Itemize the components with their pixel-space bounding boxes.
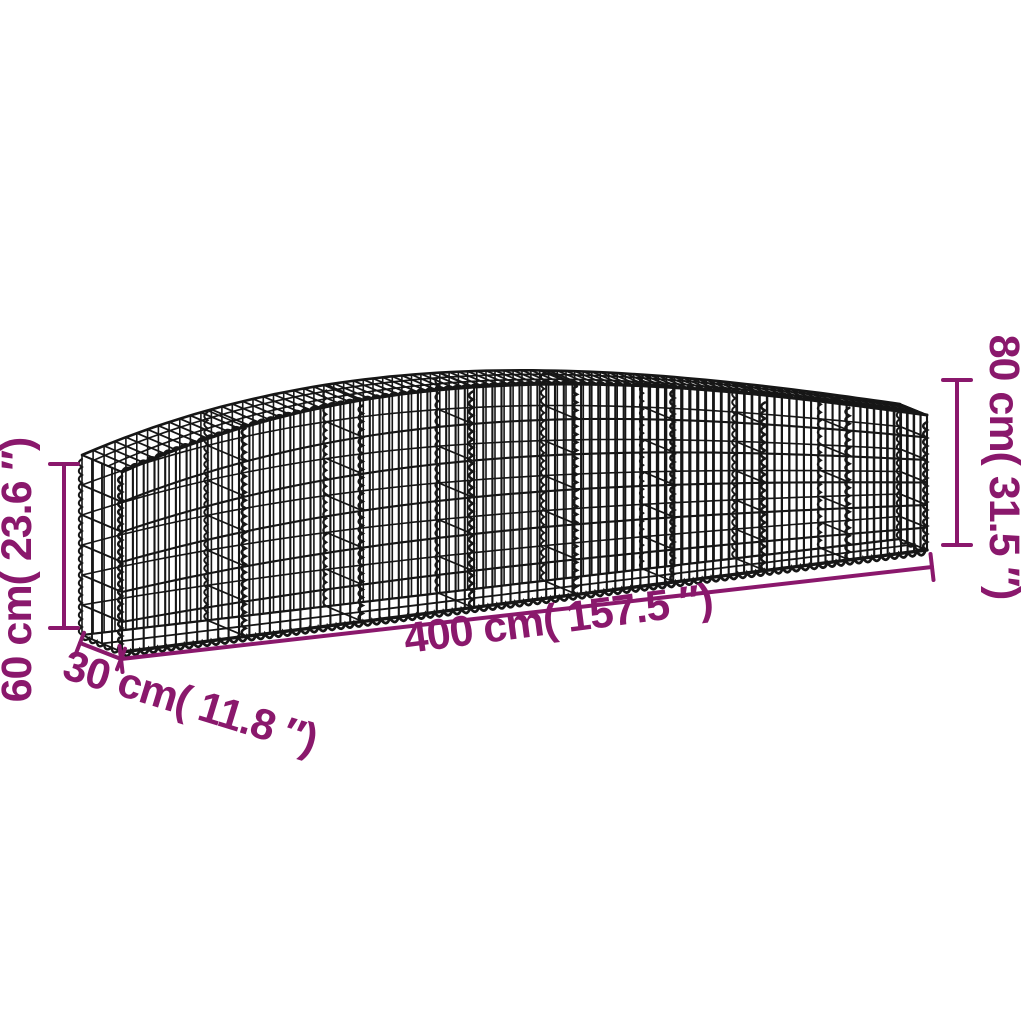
dimension-label-depth: 30 cm( 11.8 ″)	[58, 641, 323, 764]
dimension-label-height-end: 60 cm( 23.6 ″)	[0, 438, 41, 703]
dimension-height-peak: 80 cm( 31.5 ″)	[943, 335, 1024, 600]
dimension-cap	[931, 554, 934, 580]
diagram-canvas: 60 cm( 23.6 ″) 80 cm( 31.5 ″) 400 cm( 15…	[0, 0, 1024, 1024]
dimension-length: 400 cm( 157.5 ″)	[120, 554, 934, 672]
dimension-label-height-peak: 80 cm( 31.5 ″)	[980, 335, 1024, 600]
gabion-dimension-diagram: 60 cm( 23.6 ″) 80 cm( 31.5 ″) 400 cm( 15…	[0, 0, 1024, 1024]
